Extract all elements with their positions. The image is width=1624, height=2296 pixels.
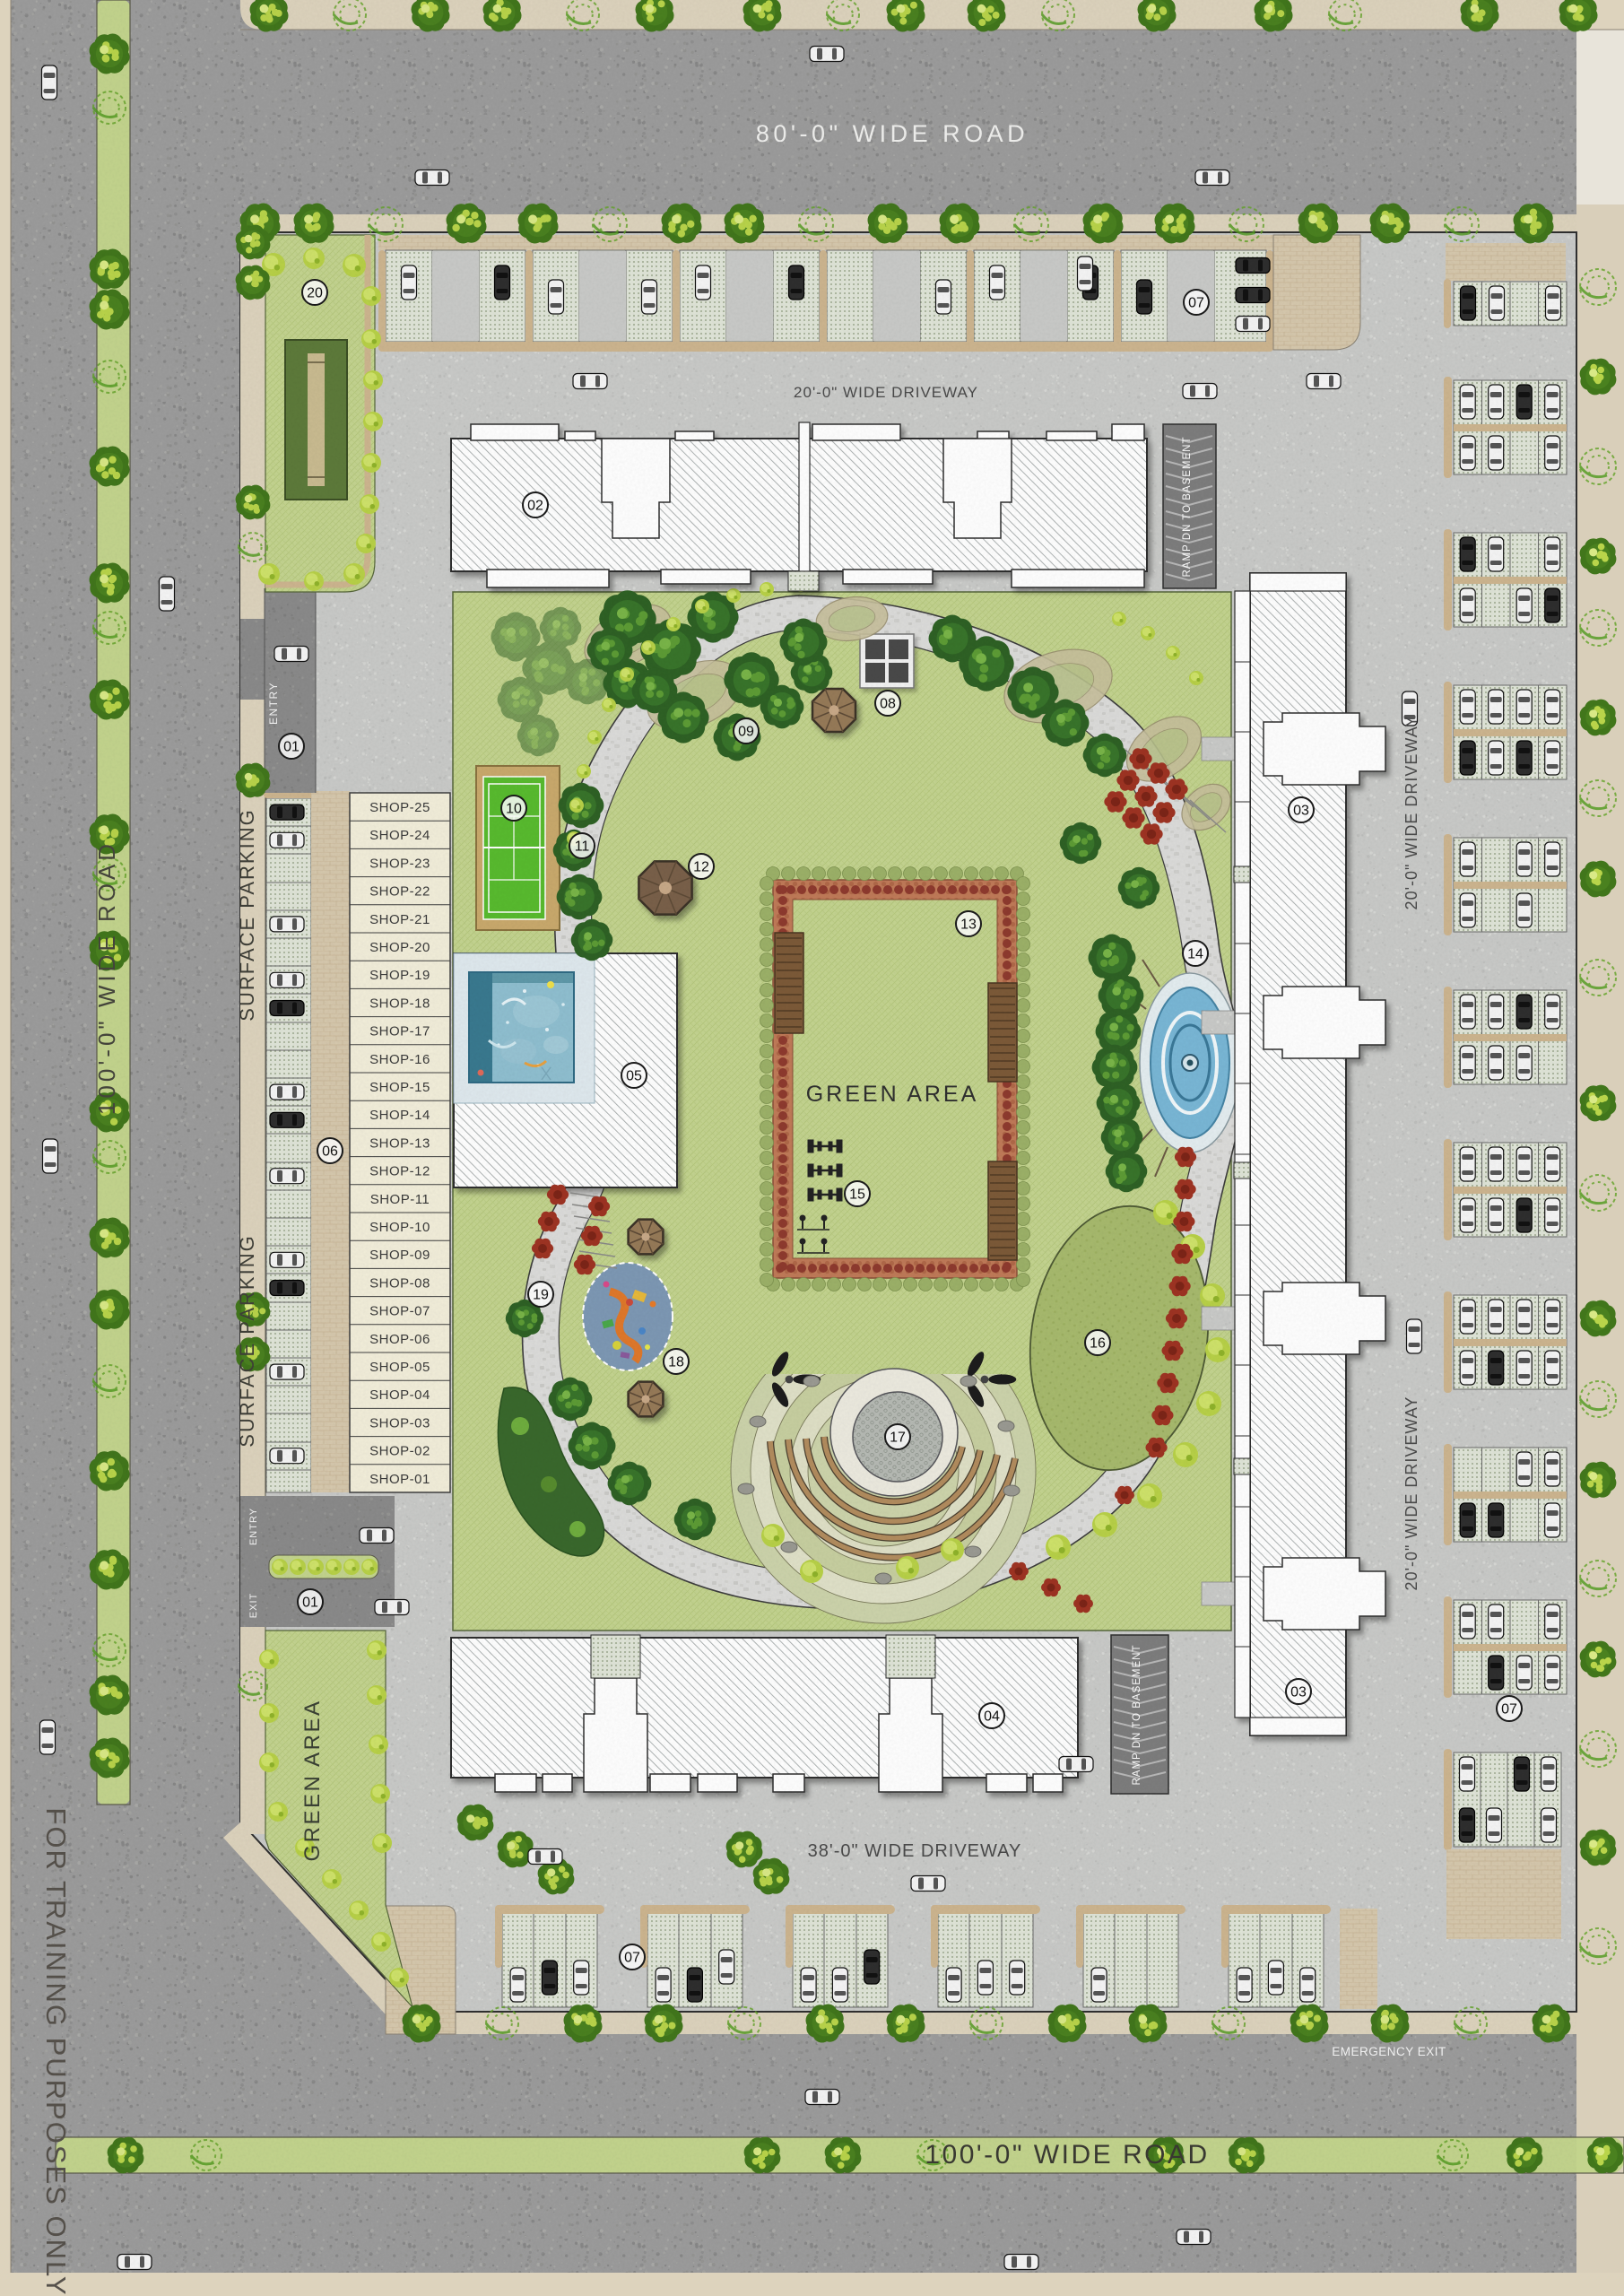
svg-text:SHOP-22: SHOP-22 bbox=[369, 884, 430, 900]
svg-text:GREEN AREA: GREEN AREA bbox=[806, 1082, 979, 1107]
svg-text:SHOP-24: SHOP-24 bbox=[369, 828, 430, 843]
svg-text:SHOP-16: SHOP-16 bbox=[369, 1052, 430, 1067]
svg-text:09: 09 bbox=[738, 725, 754, 740]
svg-text:GREEN AREA: GREEN AREA bbox=[300, 1699, 325, 1861]
svg-text:18: 18 bbox=[668, 1355, 684, 1370]
svg-text:SHOP-13: SHOP-13 bbox=[369, 1135, 430, 1151]
svg-text:EXIT: EXIT bbox=[248, 1593, 259, 1618]
svg-text:SHOP-02: SHOP-02 bbox=[369, 1444, 430, 1459]
svg-text:16: 16 bbox=[1090, 1336, 1106, 1352]
svg-text:SHOP-04: SHOP-04 bbox=[369, 1387, 430, 1403]
svg-text:EMERGENCY EXIT: EMERGENCY EXIT bbox=[1332, 2045, 1446, 2058]
svg-text:03: 03 bbox=[1290, 1685, 1307, 1700]
svg-text:SHOP-05: SHOP-05 bbox=[369, 1360, 430, 1375]
svg-text:20'-0" WIDE DRIVEWAY: 20'-0" WIDE DRIVEWAY bbox=[794, 384, 978, 401]
svg-text:20'-0" WIDE DRIVEWAY: 20'-0" WIDE DRIVEWAY bbox=[1403, 716, 1420, 910]
svg-text:SHOP-12: SHOP-12 bbox=[369, 1164, 430, 1179]
svg-text:06: 06 bbox=[322, 1144, 338, 1160]
svg-text:SHOP-10: SHOP-10 bbox=[369, 1220, 430, 1235]
svg-text:08: 08 bbox=[880, 697, 896, 712]
svg-text:100'-0" WIDE ROAD: 100'-0" WIDE ROAD bbox=[925, 2140, 1209, 2170]
svg-text:SHOP-06: SHOP-06 bbox=[369, 1332, 430, 1347]
svg-text:SHOP-19: SHOP-19 bbox=[369, 968, 430, 983]
svg-text:SHOP-15: SHOP-15 bbox=[369, 1080, 430, 1095]
svg-text:15: 15 bbox=[849, 1187, 865, 1203]
svg-text:ENTRY: ENTRY bbox=[248, 1508, 259, 1545]
svg-text:07: 07 bbox=[624, 1951, 640, 1966]
svg-text:SHOP-20: SHOP-20 bbox=[369, 940, 430, 955]
svg-text:RAMP DN TO BASEMENT: RAMP DN TO BASEMENT bbox=[1132, 1644, 1142, 1785]
svg-text:12: 12 bbox=[693, 860, 709, 875]
svg-text:SHOP-14: SHOP-14 bbox=[369, 1108, 430, 1123]
svg-text:13: 13 bbox=[960, 918, 977, 933]
svg-text:05: 05 bbox=[626, 1069, 642, 1084]
svg-text:SHOP-23: SHOP-23 bbox=[369, 856, 430, 871]
svg-text:RAMP DN TO BASEMENT: RAMP DN TO BASEMENT bbox=[1182, 436, 1193, 577]
svg-text:SURFACE PARKING: SURFACE PARKING bbox=[236, 1234, 258, 1447]
svg-text:SHOP-07: SHOP-07 bbox=[369, 1304, 430, 1319]
svg-text:80'-0" WIDE ROAD: 80'-0" WIDE ROAD bbox=[756, 120, 1029, 147]
svg-text:SHOP-03: SHOP-03 bbox=[369, 1415, 430, 1431]
svg-text:SHOP-08: SHOP-08 bbox=[369, 1275, 430, 1291]
svg-text:07: 07 bbox=[1501, 1702, 1517, 1718]
svg-text:20: 20 bbox=[307, 286, 323, 301]
svg-text:19: 19 bbox=[533, 1288, 549, 1303]
svg-text:03: 03 bbox=[1293, 804, 1309, 819]
svg-text:SHOP-09: SHOP-09 bbox=[369, 1248, 430, 1263]
svg-text:14: 14 bbox=[1187, 947, 1203, 962]
svg-text:SURFACE PARKING: SURFACE PARKING bbox=[236, 808, 258, 1021]
svg-text:SHOP-18: SHOP-18 bbox=[369, 996, 430, 1011]
svg-text:SHOP-25: SHOP-25 bbox=[369, 800, 430, 815]
svg-text:SHOP-11: SHOP-11 bbox=[370, 1192, 430, 1207]
svg-text:FOR TRAINING PURPOSES ONLY: FOR TRAINING PURPOSES ONLY bbox=[40, 1807, 72, 2296]
svg-text:SHOP-17: SHOP-17 bbox=[369, 1024, 430, 1039]
svg-text:01: 01 bbox=[283, 740, 300, 755]
svg-text:10: 10 bbox=[506, 802, 522, 817]
svg-text:17: 17 bbox=[890, 1431, 906, 1446]
svg-text:20'-0" WIDE DRIVEWAY: 20'-0" WIDE DRIVEWAY bbox=[1403, 1396, 1420, 1591]
svg-text:SHOP-01: SHOP-01 bbox=[369, 1472, 430, 1487]
svg-text:100'-0" WIDE ROAD: 100'-0" WIDE ROAD bbox=[93, 840, 120, 1115]
svg-text:SHOP-21: SHOP-21 bbox=[369, 912, 430, 927]
svg-text:02: 02 bbox=[527, 499, 543, 514]
svg-text:ENTRY: ENTRY bbox=[267, 682, 280, 725]
svg-text:38'-0" WIDE DRIVEWAY: 38'-0" WIDE DRIVEWAY bbox=[808, 1841, 1022, 1861]
svg-text:11: 11 bbox=[575, 839, 590, 855]
svg-text:04: 04 bbox=[984, 1709, 1000, 1725]
svg-text:01: 01 bbox=[302, 1596, 318, 1611]
svg-text:07: 07 bbox=[1188, 296, 1204, 311]
